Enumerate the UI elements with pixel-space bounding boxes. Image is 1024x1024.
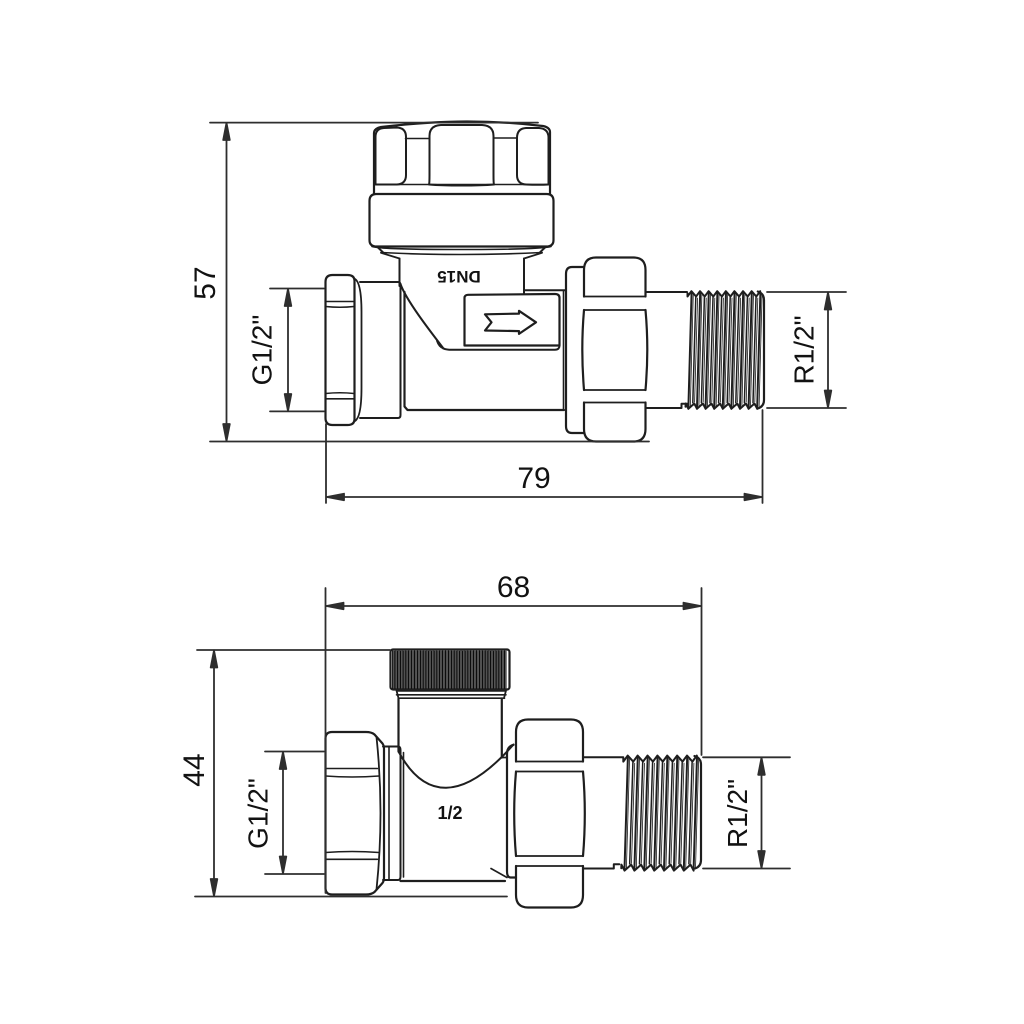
svg-text:G1/2": G1/2" bbox=[242, 778, 273, 849]
svg-text:68: 68 bbox=[497, 571, 530, 604]
svg-text:1/2: 1/2 bbox=[437, 803, 462, 823]
svg-text:R1/2": R1/2" bbox=[722, 779, 753, 848]
svg-text:R1/2": R1/2" bbox=[788, 315, 819, 384]
svg-text:57: 57 bbox=[189, 266, 222, 299]
svg-text:79: 79 bbox=[517, 462, 550, 495]
svg-text:44: 44 bbox=[178, 753, 211, 786]
svg-text:G1/2": G1/2" bbox=[246, 315, 277, 386]
svg-text:DN15: DN15 bbox=[437, 267, 480, 286]
